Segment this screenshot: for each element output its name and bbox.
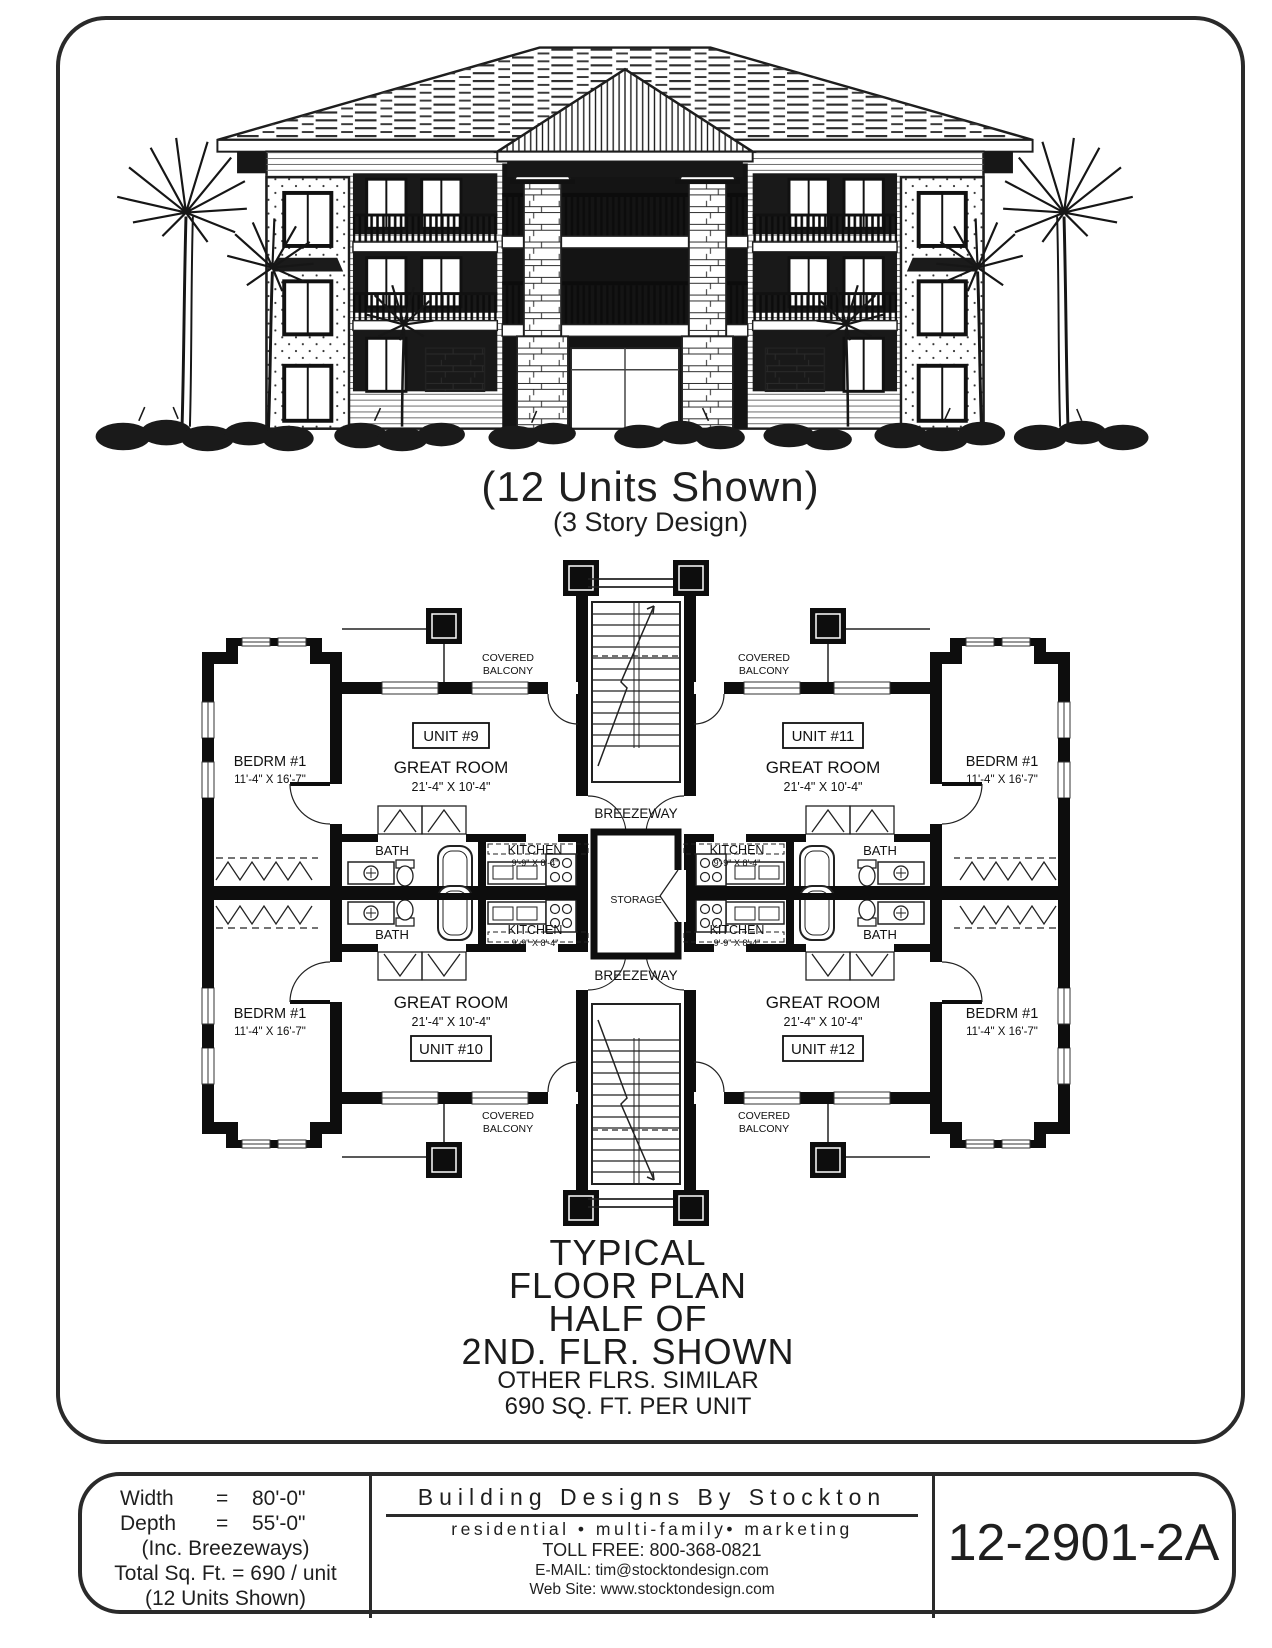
caption-other-flrs: OTHER FLRS. SIMILAR	[56, 1368, 1200, 1394]
email-label: E-MAIL:	[535, 1562, 591, 1579]
width-label: Width	[120, 1486, 216, 1511]
caption-2nd-flr: 2ND. FLR. SHOWN	[56, 1335, 1200, 1368]
bedroom-label: BEDRM #1	[234, 1006, 307, 1022]
units-shown-caption: (12 Units Shown)	[56, 466, 1245, 509]
storage-label: STORAGE	[610, 894, 661, 906]
floor-plan-drawing: COVERED BALCONY COVERED BALCONY COVERED …	[186, 552, 1086, 1234]
bedroom-dims: 11'-4" X 16'-7"	[234, 1026, 306, 1038]
covered-balcony-label: COVERED	[738, 652, 790, 664]
covered-balcony-label: COVERED	[482, 1110, 534, 1122]
web-line: Web Site: www.stocktondesign.com	[372, 1580, 932, 1599]
bedroom-label: BEDRM #1	[966, 1006, 1039, 1022]
bath-label: BATH	[863, 927, 897, 942]
units-shown-note: (12 Units Shown)	[82, 1586, 369, 1611]
covered-balcony-label: BALCONY	[739, 1123, 789, 1135]
building-elevation-drawing	[70, 24, 1180, 464]
total-sqft-line: Total Sq. Ft. = 690 / unit	[82, 1561, 369, 1586]
bedroom-dims: 11'-4" X 16'-7"	[966, 774, 1038, 786]
depth-label: Depth	[120, 1511, 216, 1536]
bedroom-label: BEDRM #1	[966, 754, 1039, 770]
great-room-label: GREAT ROOM	[766, 993, 881, 1012]
great-room-label: GREAT ROOM	[394, 758, 509, 777]
center-portico	[502, 163, 748, 428]
bedroom-dims: 11'-4" X 16'-7"	[234, 774, 306, 786]
great-room-dims: 21'-4" X 10'-4"	[412, 1015, 491, 1029]
title-block: Width = 80'-0" Depth = 55'-0" (Inc. Bree…	[78, 1472, 1236, 1614]
email-line: E-MAIL: tim@stocktondesign.com	[372, 1561, 932, 1580]
great-room-label: GREAT ROOM	[766, 758, 881, 777]
width-value: 80'-0"	[252, 1486, 369, 1511]
story-design-caption: (3 Story Design)	[56, 509, 1245, 537]
company-name: Building Designs By Stockton	[372, 1484, 932, 1511]
unit-10-label: UNIT #10	[419, 1041, 483, 1058]
covered-balcony-label: COVERED	[482, 652, 534, 664]
kitchen-dims: 9'-9" X 8'-4"	[714, 858, 761, 868]
depth-value: 55'-0"	[252, 1511, 369, 1536]
bedroom-label: BEDRM #1	[234, 754, 307, 770]
caption-sq-ft: 690 SQ. FT. PER UNIT	[56, 1394, 1200, 1420]
stone-end-tower-right	[901, 177, 984, 428]
width-eq: =	[216, 1486, 252, 1511]
great-room-dims: 21'-4" X 10'-4"	[412, 780, 491, 794]
kitchen-label: KITCHEN	[508, 843, 563, 857]
kitchen-dims: 9'-9" X 8'-4"	[512, 858, 559, 868]
great-room-dims: 21'-4" X 10'-4"	[784, 780, 863, 794]
bath-label: BATH	[863, 843, 897, 858]
depth-eq: =	[216, 1511, 252, 1536]
unit-12-label: UNIT #12	[791, 1041, 855, 1058]
web-label: Web Site:	[529, 1581, 596, 1598]
company-tagline: residential • multi-family• marketing	[372, 1519, 932, 1540]
web-value: www.stocktondesign.com	[601, 1581, 775, 1598]
breezeway-label: BREEZEWAY	[594, 806, 677, 821]
unit-11-label: UNIT #11	[792, 728, 855, 745]
bath-label: BATH	[375, 927, 409, 942]
covered-balcony-label: BALCONY	[483, 1123, 533, 1135]
bath-label: BATH	[375, 843, 409, 858]
toll-free-line: TOLL FREE: 800-368-0821	[372, 1540, 932, 1561]
breezeways-note: (Inc. Breezeways)	[82, 1536, 369, 1561]
floor-plan-caption: TYPICAL FLOOR PLAN HALF OF 2ND. FLR. SHO…	[56, 1236, 1200, 1420]
plan-number: 12-2901-2A	[948, 1513, 1220, 1573]
covered-balcony-label: COVERED	[738, 1110, 790, 1122]
bedroom-dims: 11'-4" X 16'-7"	[966, 1026, 1038, 1038]
kitchen-label: KITCHEN	[710, 923, 765, 937]
great-room-label: GREAT ROOM	[394, 993, 509, 1012]
unit-9-label: UNIT #9	[423, 728, 479, 745]
specs-cell: Width = 80'-0" Depth = 55'-0" (Inc. Bree…	[82, 1476, 369, 1620]
company-cell: Building Designs By Stockton residential…	[369, 1476, 935, 1618]
kitchen-label: KITCHEN	[710, 843, 765, 857]
plan-number-cell: 12-2901-2A	[935, 1476, 1232, 1610]
great-room-dims: 21'-4" X 10'-4"	[784, 1015, 863, 1029]
covered-balcony-label: BALCONY	[739, 665, 789, 677]
kitchen-dims: 9'-9" X 8'-4"	[714, 938, 761, 948]
stone-end-tower-left	[267, 177, 350, 428]
email-value: tim@stocktondesign.com	[595, 1562, 768, 1579]
breezeway-label: BREEZEWAY	[594, 968, 677, 983]
company-rule	[386, 1514, 918, 1517]
covered-balcony-label: BALCONY	[483, 665, 533, 677]
kitchen-label: KITCHEN	[508, 923, 563, 937]
scanned-plan-page: (12 Units Shown) (3 Story Design)	[0, 0, 1272, 1648]
elevation-caption: (12 Units Shown) (3 Story Design)	[56, 466, 1245, 536]
kitchen-dims: 9'-9" X 8'-4"	[512, 938, 559, 948]
